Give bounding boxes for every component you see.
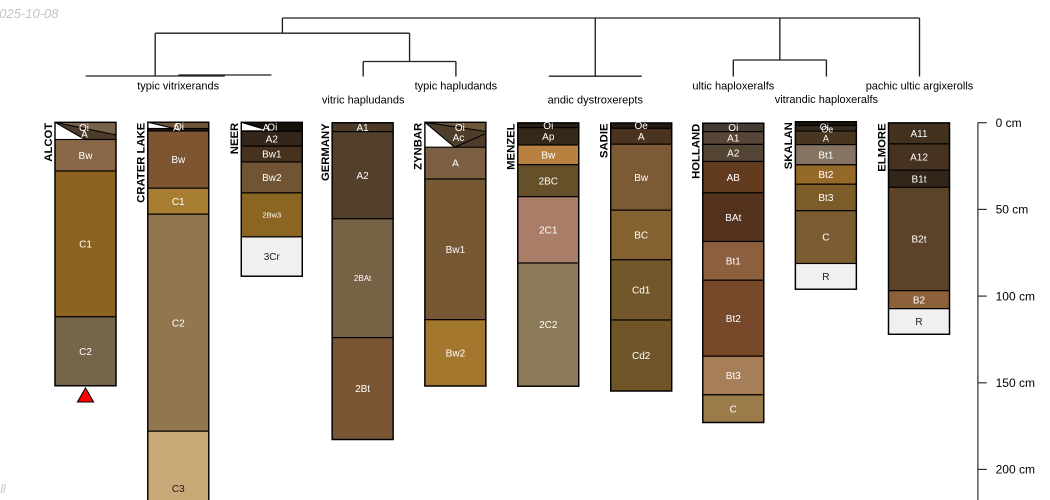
- svg-text:ELMORE: ELMORE: [876, 123, 888, 172]
- svg-text:150 cm: 150 cm: [996, 376, 1035, 390]
- svg-text:vitric hapludands: vitric hapludands: [322, 94, 405, 106]
- svg-text:Bw: Bw: [541, 150, 556, 161]
- svg-text:C1: C1: [172, 197, 185, 208]
- svg-text:A2: A2: [356, 171, 369, 182]
- svg-text:0 cm: 0 cm: [996, 116, 1022, 130]
- svg-text:AB: AB: [727, 173, 741, 184]
- svg-text:ZYNBAR: ZYNBAR: [413, 123, 425, 170]
- svg-text:andic dystroxerepts: andic dystroxerepts: [548, 94, 644, 106]
- svg-text:GERMANY: GERMANY: [320, 123, 332, 181]
- svg-text:ALCOT: ALCOT: [43, 123, 55, 162]
- svg-text:Bw: Bw: [634, 173, 649, 184]
- svg-text:3Cr: 3Cr: [264, 252, 281, 263]
- svg-text:A2: A2: [727, 149, 740, 160]
- svg-text:typic hapludands: typic hapludands: [415, 81, 498, 93]
- svg-text:B1t: B1t: [911, 174, 926, 185]
- svg-text:2Bt: 2Bt: [355, 384, 370, 395]
- svg-text:C1: C1: [79, 240, 92, 251]
- svg-text:Bw1: Bw1: [446, 245, 466, 256]
- svg-text:C: C: [730, 404, 737, 415]
- svg-text:A: A: [823, 134, 829, 144]
- svg-text:Bt3: Bt3: [818, 193, 833, 204]
- svg-text:2BAt: 2BAt: [354, 274, 372, 283]
- svg-text:2025-10-08: 2025-10-08: [0, 6, 59, 21]
- svg-text:50 cm: 50 cm: [996, 203, 1029, 217]
- svg-text:Bw2: Bw2: [262, 173, 282, 184]
- svg-text:vitrandic haploxeralfs: vitrandic haploxeralfs: [775, 94, 879, 106]
- svg-text:Cd2: Cd2: [632, 351, 651, 362]
- svg-text:pachic ultic argixerolls: pachic ultic argixerolls: [866, 80, 974, 92]
- svg-text:A1: A1: [356, 123, 369, 134]
- svg-text:R: R: [822, 272, 829, 283]
- svg-text:BAt: BAt: [725, 213, 741, 224]
- svg-text:B2t: B2t: [911, 235, 926, 246]
- svg-text:Bw: Bw: [79, 151, 94, 162]
- svg-text:2Bw3: 2Bw3: [262, 211, 281, 220]
- svg-text:C2: C2: [79, 347, 92, 358]
- svg-text:Oe: Oe: [635, 121, 649, 132]
- svg-text:Bw1: Bw1: [262, 150, 282, 161]
- svg-text:B2: B2: [913, 295, 926, 306]
- svg-text:C: C: [822, 233, 829, 244]
- svg-text:Oi: Oi: [728, 123, 738, 134]
- svg-text:Oi: Oi: [267, 123, 277, 134]
- svg-text:typic vitrixerands: typic vitrixerands: [137, 81, 219, 93]
- svg-text:CRATER LAKE: CRATER LAKE: [136, 122, 148, 203]
- svg-text:Bt2: Bt2: [726, 314, 741, 325]
- svg-text:MENZEL: MENZEL: [506, 123, 518, 170]
- svg-text:2BC: 2BC: [539, 176, 558, 187]
- svg-text:all: all: [0, 482, 6, 496]
- svg-text:HOLLAND: HOLLAND: [691, 124, 703, 179]
- svg-text:A1: A1: [727, 134, 740, 145]
- svg-text:A: A: [452, 159, 459, 170]
- svg-text:Bt3: Bt3: [726, 371, 741, 382]
- svg-text:200 cm: 200 cm: [996, 463, 1035, 477]
- svg-text:2C2: 2C2: [539, 320, 558, 331]
- svg-text:A12: A12: [910, 153, 928, 164]
- svg-text:Bw: Bw: [171, 155, 186, 166]
- svg-text:R: R: [915, 317, 922, 328]
- svg-text:C2: C2: [172, 318, 185, 329]
- svg-text:Ap: Ap: [542, 132, 555, 143]
- svg-text:Oi: Oi: [543, 121, 553, 132]
- svg-text:C3: C3: [172, 484, 185, 495]
- svg-text:100 cm: 100 cm: [996, 289, 1035, 303]
- svg-text:A: A: [81, 129, 88, 140]
- svg-text:NEER: NEER: [229, 123, 241, 154]
- svg-text:Bt1: Bt1: [818, 150, 833, 161]
- svg-text:Cd1: Cd1: [632, 286, 651, 297]
- svg-text:Bt1: Bt1: [726, 256, 741, 267]
- svg-text:BC: BC: [634, 231, 648, 242]
- svg-text:A: A: [638, 132, 645, 143]
- svg-text:Bt2: Bt2: [818, 170, 833, 181]
- svg-text:Bw2: Bw2: [446, 348, 466, 359]
- svg-text:2C1: 2C1: [539, 225, 558, 236]
- svg-text:A11: A11: [910, 129, 927, 140]
- svg-text:A: A: [173, 123, 180, 134]
- svg-text:SADIE: SADIE: [599, 123, 611, 158]
- svg-text:A2: A2: [266, 134, 279, 145]
- svg-text:SKALAN: SKALAN: [783, 122, 795, 169]
- svg-text:Ac: Ac: [453, 133, 465, 144]
- svg-text:ultic haploxeralfs: ultic haploxeralfs: [692, 81, 774, 93]
